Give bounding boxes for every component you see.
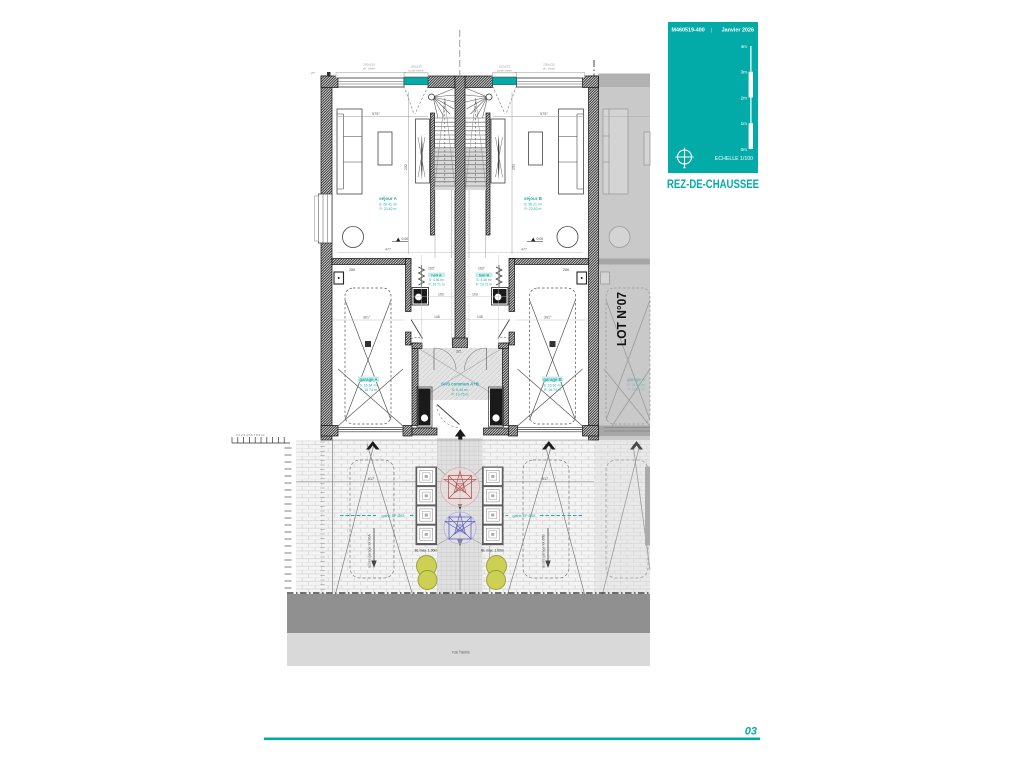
- svg-text:292: 292: [404, 164, 408, 170]
- svg-text:garage A: garage A: [627, 377, 645, 382]
- svg-text:ch. vitrée: ch. vitrée: [543, 67, 556, 71]
- svg-text:3m: 3m: [741, 70, 748, 75]
- svg-text:hall A: hall A: [431, 272, 442, 277]
- svg-text:0 1 2 3 4 5 6 7 8 9: 0 1 2 3 4 5 6 7 8 9 10: [236, 433, 265, 437]
- svg-text:0m: 0m: [741, 147, 748, 152]
- svg-text:P: 16.74 m: P: 16.74 m: [360, 388, 377, 392]
- svg-text:0.00: 0.00: [537, 237, 544, 241]
- svg-text:P: 23.82 m: P: 23.82 m: [525, 207, 542, 211]
- svg-text:27°: 27°: [311, 71, 316, 75]
- svg-text:BL max. 1.00m: BL max. 1.00m: [481, 549, 504, 553]
- svg-text:LOT N°07: LOT N°07: [615, 292, 629, 346]
- svg-text:03: 03: [745, 726, 757, 738]
- svg-text:4m: 4m: [741, 44, 748, 49]
- svg-text:477: 477: [385, 248, 391, 252]
- svg-text:S: 16.64 m²: S: 16.64 m²: [359, 383, 378, 387]
- svg-text:1m: 1m: [741, 121, 748, 126]
- svg-text:S: 16.64 m²: S: 16.64 m²: [627, 383, 645, 387]
- svg-text:P: 16.74 m: P: 16.74 m: [628, 388, 645, 392]
- svg-text:163°: 163°: [428, 267, 436, 271]
- svg-text:porte vitrée: porte vitrée: [408, 68, 423, 72]
- svg-text:gaine EP Ø63: gaine EP Ø63: [513, 514, 536, 518]
- svg-text:hall B: hall B: [479, 272, 490, 277]
- svg-text:575°: 575°: [540, 112, 548, 116]
- svg-text:P: 10.71 m: P: 10.71 m: [476, 282, 492, 286]
- svg-text:477: 477: [521, 248, 527, 252]
- svg-text:301°: 301°: [363, 316, 371, 320]
- svg-text:103: 103: [438, 293, 444, 297]
- svg-text:|: |: [711, 28, 712, 33]
- svg-text:P: 10.75 m: P: 10.75 m: [452, 392, 469, 396]
- svg-text:gaine EP Ø63: gaine EP Ø63: [382, 514, 405, 518]
- svg-text:321: 321: [456, 350, 462, 354]
- svg-text:0.00: 0.00: [402, 237, 409, 241]
- svg-text:porte vitrée: porte vitrée: [497, 68, 512, 72]
- svg-text:S: 6.44 m²: S: 6.44 m²: [452, 388, 469, 392]
- svg-text:P: 16.74 m: P: 16.74 m: [544, 388, 561, 392]
- svg-text:163°: 163°: [478, 267, 486, 271]
- svg-text:617: 617: [542, 477, 548, 481]
- svg-text:accès garage lot 06A: accès garage lot 06A: [368, 534, 372, 568]
- svg-text:P: 10.71 m: P: 10.71 m: [429, 282, 445, 286]
- svg-text:BL max. 1.00m: BL max. 1.00m: [415, 549, 438, 553]
- svg-text:S: 16.61 m²: S: 16.61 m²: [543, 383, 562, 387]
- svg-text:accès garage lot 06B: accès garage lot 06B: [542, 534, 546, 568]
- svg-text:301°: 301°: [544, 316, 552, 320]
- svg-text:Janvier 2026: Janvier 2026: [722, 28, 754, 34]
- svg-text:ch. vitrée: ch. vitrée: [363, 67, 376, 71]
- svg-text:rue haute: rue haute: [452, 650, 470, 655]
- svg-text:292: 292: [512, 164, 516, 170]
- svg-text:2m: 2m: [741, 96, 748, 101]
- svg-text:103: 103: [472, 293, 478, 297]
- svg-text:garage A: garage A: [359, 377, 377, 382]
- svg-text:575°: 575°: [372, 112, 380, 116]
- svg-text:garage B: garage B: [543, 377, 561, 382]
- svg-text:148: 148: [477, 315, 483, 319]
- svg-text:séjour B: séjour B: [524, 196, 543, 201]
- svg-text:séjour A: séjour A: [379, 196, 398, 201]
- svg-text:286: 286: [349, 268, 355, 272]
- svg-text:286: 286: [563, 268, 569, 272]
- svg-text:REZ-DE-CHAUSSEE: REZ-DE-CHAUSSEE: [667, 177, 759, 191]
- svg-text:M460519-400: M460519-400: [672, 28, 705, 34]
- svg-text:SAS commun A+B: SAS commun A+B: [441, 382, 479, 387]
- svg-text:ECHELLE 1/100: ECHELLE 1/100: [715, 156, 753, 162]
- svg-text:S: 26.41 m²: S: 26.41 m²: [379, 202, 398, 206]
- svg-text:148: 148: [434, 315, 440, 319]
- svg-text:S: 26.21 m²: S: 26.21 m²: [524, 202, 543, 206]
- svg-text:617: 617: [368, 477, 374, 481]
- svg-text:P: 23.82 m: P: 23.82 m: [380, 207, 397, 211]
